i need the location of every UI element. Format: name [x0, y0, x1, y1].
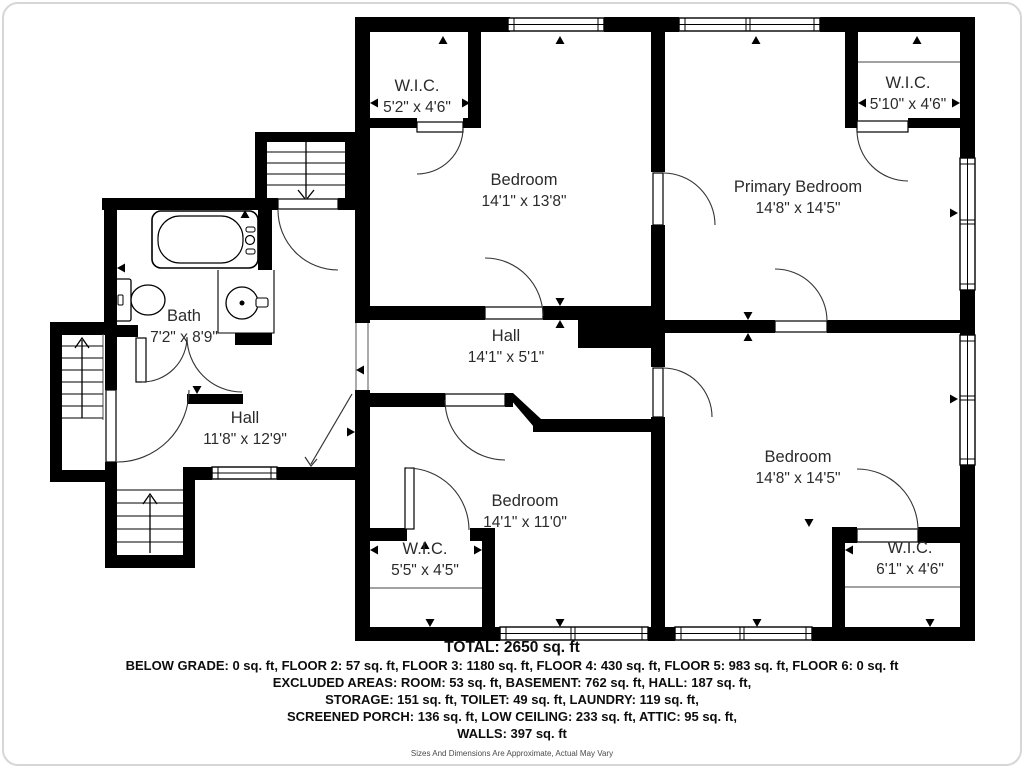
area-summary: TOTAL: 2650 sq. ft BELOW GRADE: 0 sq. ft… [0, 638, 1024, 758]
excluded-areas-text-1: EXCLUDED AREAS: ROOM: 53 sq. ft, BASEMEN… [0, 674, 1024, 691]
room-label-primary-bedroom: Primary Bedroom14'8" x 14'5" [734, 177, 862, 219]
disclaimer-text: Sizes And Dimensions Are Approximate, Ac… [0, 749, 1024, 758]
floor-plan: Bath7'2" x 8'9" Hall11'8" x 12'9" Hall14… [0, 0, 1024, 768]
room-label-hall-left: Hall11'8" x 12'9" [203, 408, 287, 450]
room-label-bath: Bath7'2" x 8'9" [150, 306, 218, 348]
excluded-areas-text-3: SCREENED PORCH: 136 sq. ft, LOW CEILING:… [0, 708, 1024, 725]
staircase-bottom-icon [117, 490, 183, 553]
room-label-bedroom-top: Bedroom14'1" x 13'8" [481, 170, 566, 212]
room-label-wic-bottom-right: W.I.C.6'1" x 4'6" [876, 538, 944, 580]
excluded-areas-text-2: STORAGE: 151 sq. ft, TOILET: 49 sq. ft, … [0, 691, 1024, 708]
ceiling-slope-arrow-icon [305, 394, 352, 466]
staircase-top-icon [298, 142, 314, 200]
room-label-wic-bottom-left: W.I.C.5'5" x 4'5" [391, 539, 459, 581]
walls-area-text: WALLS: 397 sq. ft [0, 725, 1024, 742]
room-label-bedroom-bottom: Bedroom14'1" x 11'0" [483, 491, 567, 533]
room-label-wic-top-right: W.I.C.5'10" x 4'6" [870, 73, 946, 115]
floors-area-text: BELOW GRADE: 0 sq. ft, FLOOR 2: 57 sq. f… [0, 657, 1024, 674]
room-label-hall-center: Hall14'1" x 5'1" [468, 326, 544, 368]
bathtub-icon [152, 211, 258, 268]
room-label-wic-top-left: W.I.C.5'2" x 4'6" [383, 76, 451, 118]
total-area-text: TOTAL: 2650 sq. ft [0, 638, 1024, 657]
sink-icon [218, 270, 274, 333]
room-label-bedroom-right: Bedroom14'8" x 14'5" [755, 447, 840, 489]
